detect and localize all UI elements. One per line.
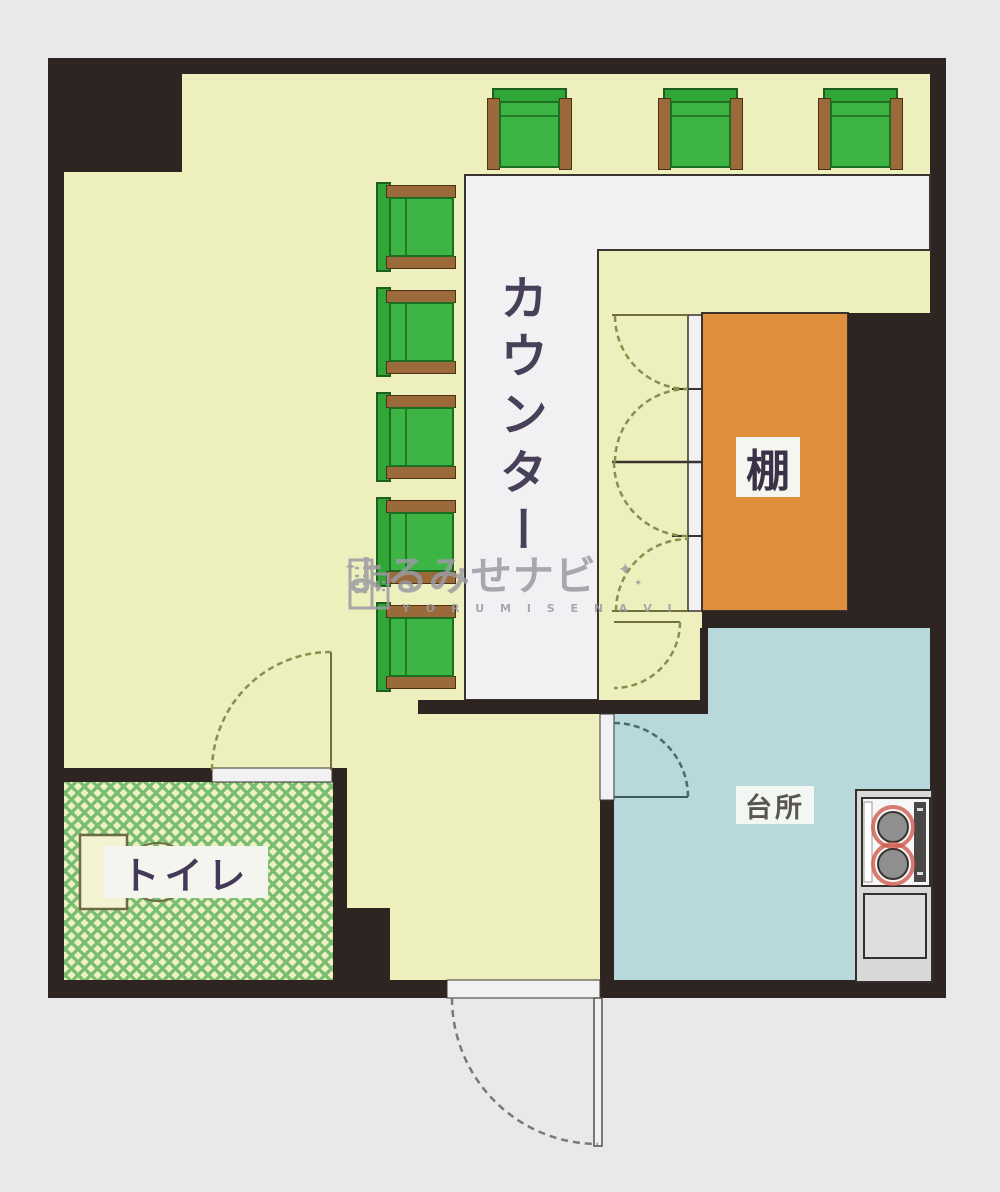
stool-seat (389, 197, 454, 257)
stool-seat (499, 101, 560, 168)
watermark-brand-en: Y O R U M I S E N A V I (402, 602, 666, 615)
sparkle-icon: ✦ (634, 578, 642, 589)
counter-stool (818, 88, 903, 170)
counter-stool (376, 185, 456, 269)
floorplan-page: カウンター 棚 台所 トイレ ✦ ✦ ✦ よるみせナビ Y O R U M I … (0, 0, 1000, 1192)
counter-label: カウンター (488, 253, 550, 583)
stool-arm (386, 361, 456, 374)
counter-stool (376, 290, 456, 374)
stool-seat (389, 407, 454, 467)
sparkle-icon: ✦ (618, 560, 632, 580)
building-icon (346, 556, 392, 612)
stool-arm (890, 98, 903, 170)
shelf-label: 棚 (736, 437, 800, 497)
toilet-label: トイレ (104, 846, 268, 898)
stool-arm (386, 466, 456, 479)
stool-seat (670, 101, 731, 168)
stool-arm (730, 98, 743, 170)
counter-stool (376, 395, 456, 479)
counter-stool (487, 88, 572, 170)
stool-seat (389, 302, 454, 362)
stool-arm (386, 256, 456, 269)
kitchen-label: 台所 (736, 786, 814, 824)
watermark: ✦ ✦ ✦ よるみせナビ Y O R U M I S E N A V I (346, 556, 666, 648)
stool-arm (559, 98, 572, 170)
counter-stool (658, 88, 743, 170)
stool-arm (386, 676, 456, 689)
stool-seat (830, 101, 891, 168)
